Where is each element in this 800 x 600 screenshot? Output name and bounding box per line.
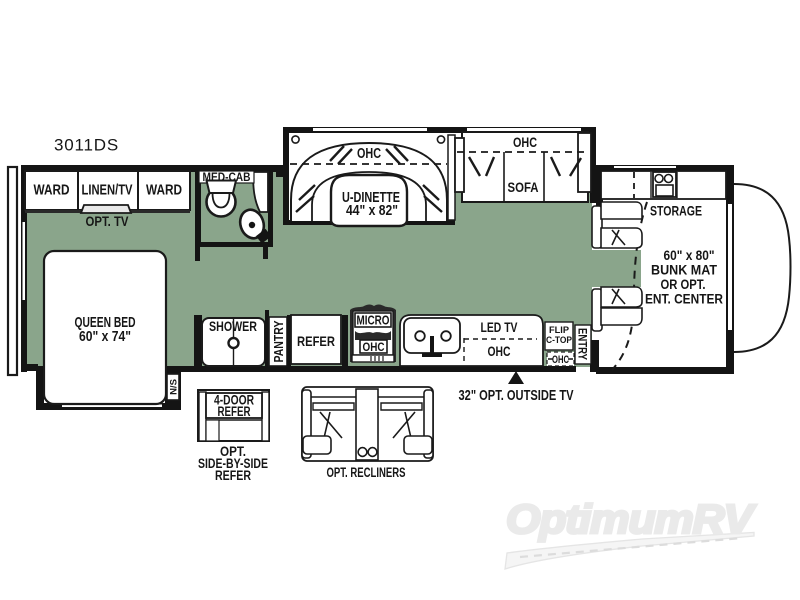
svg-text:OHC: OHC (552, 354, 569, 366)
svg-text:LINEN/TV: LINEN/TV (82, 182, 133, 199)
svg-text:OPT. RECLINERS: OPT. RECLINERS (327, 465, 406, 480)
svg-text:WARD: WARD (146, 182, 182, 199)
svg-text:C-TOP: C-TOP (546, 335, 573, 346)
svg-text:ENTRY: ENTRY (576, 328, 590, 360)
svg-text:32" OPT. OUTSIDE TV: 32" OPT. OUTSIDE TV (459, 387, 574, 404)
svg-text:WARD: WARD (34, 182, 70, 199)
svg-text:REFER: REFER (218, 404, 251, 419)
svg-text:60" x 74": 60" x 74" (79, 328, 131, 345)
svg-text:PANTRY: PANTRY (271, 320, 286, 362)
svg-text:OHC: OHC (357, 146, 381, 162)
svg-text:LED TV: LED TV (481, 319, 518, 335)
svg-text:REFER: REFER (297, 333, 335, 349)
svg-text:SOFA: SOFA (508, 179, 539, 195)
svg-text:N/S: N/S (169, 379, 180, 395)
svg-text:OPT. TV: OPT. TV (86, 214, 129, 229)
svg-text:STORAGE: STORAGE (650, 203, 702, 219)
svg-text:44" x 82": 44" x 82" (346, 203, 398, 219)
svg-text:MICRO: MICRO (357, 314, 390, 328)
svg-text:60" x 80": 60" x 80" (664, 248, 715, 263)
svg-text:ENT. CENTER: ENT. CENTER (645, 292, 723, 307)
svg-text:SHOWER: SHOWER (209, 318, 257, 334)
svg-text:3011DS: 3011DS (54, 136, 119, 155)
svg-text:OptimumRV: OptimumRV (506, 496, 757, 542)
svg-text:BUNK MAT: BUNK MAT (651, 263, 718, 278)
svg-text:OR OPT.: OR OPT. (661, 277, 706, 292)
svg-text:OHC: OHC (363, 340, 385, 354)
svg-text:REFER: REFER (215, 468, 251, 483)
svg-text:OHC: OHC (488, 343, 511, 359)
svg-text:OHC: OHC (513, 134, 537, 150)
